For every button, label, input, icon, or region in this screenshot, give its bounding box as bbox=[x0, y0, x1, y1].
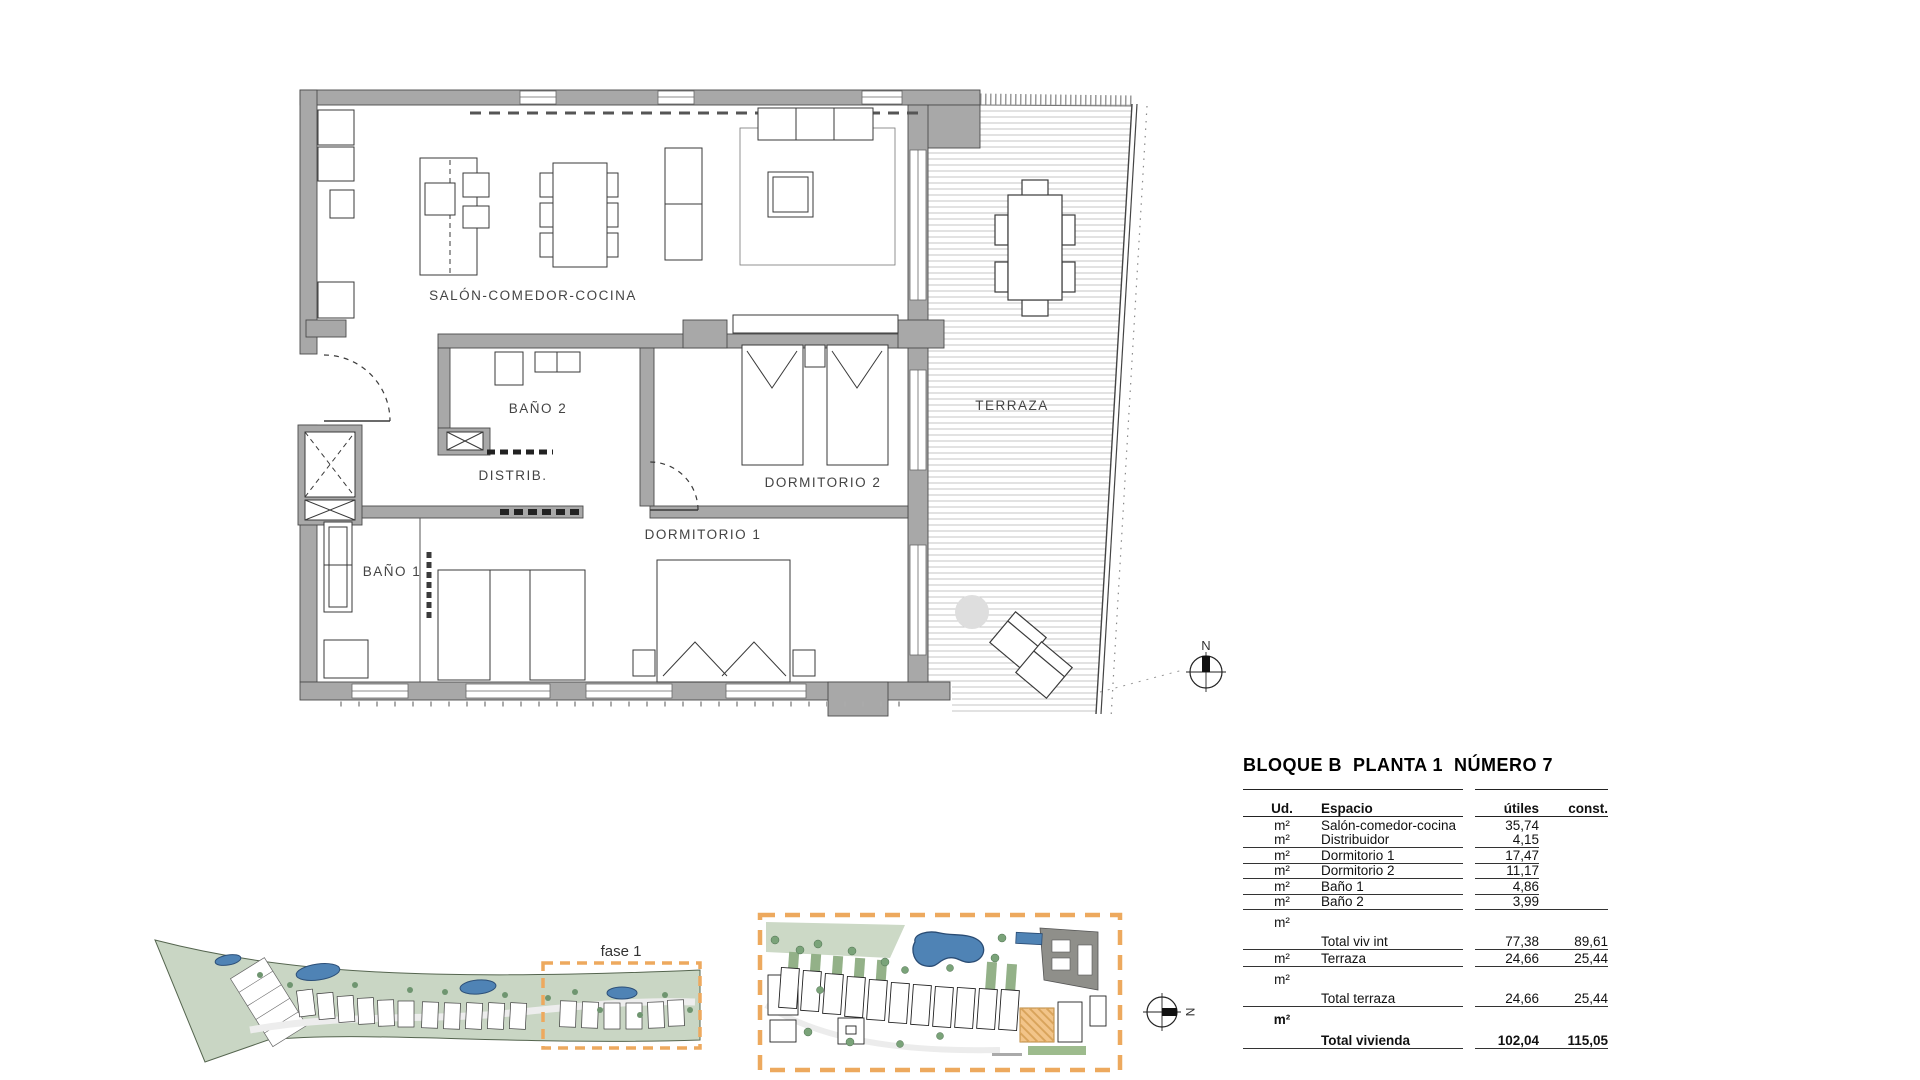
cell-utiles: 4,15 bbox=[1475, 832, 1539, 848]
architectural-sheet: SALÓN-COMEDOR-COCINA BAÑO 2 DISTRIB. DOR… bbox=[0, 0, 1920, 1080]
cell-const: 89,61 bbox=[1539, 934, 1608, 949]
phase1-label: fase 1 bbox=[601, 943, 642, 960]
elevator bbox=[305, 432, 355, 520]
table-row: m²Dormitorio 1 17,47 bbox=[1243, 848, 1611, 864]
bedroom2-beds bbox=[742, 345, 888, 465]
label-distrib: DISTRIB. bbox=[478, 468, 547, 483]
bedroom1-wardrobe bbox=[429, 552, 585, 680]
cell-utiles: 102,04 bbox=[1475, 1033, 1539, 1048]
site-overview-plan: fase 1 bbox=[155, 940, 700, 1062]
table-row: m²Baño 2 3,99 bbox=[1243, 895, 1611, 911]
table-row: m²Distribuidor 4,15 bbox=[1243, 833, 1611, 849]
col-ud: Ud. bbox=[1243, 801, 1321, 816]
label-bano2: BAÑO 2 bbox=[509, 401, 568, 416]
cell-espacio: Terraza bbox=[1321, 951, 1463, 966]
table-row-total: m²Total terraza 24,6625,44 bbox=[1243, 967, 1611, 1007]
summary-title: BLOQUE B PLANTA 1 NÚMERO 7 bbox=[1243, 755, 1611, 776]
cell-espacio: Total terraza bbox=[1321, 991, 1463, 1006]
site-detail-plan bbox=[760, 915, 1120, 1070]
detail-green-strip bbox=[1028, 1046, 1086, 1055]
table-header: Ud. Espacio útiles const. bbox=[1243, 790, 1611, 817]
table-row-grand-total: m²Total vivienda 102,04115,05 bbox=[1243, 1007, 1611, 1049]
cell-ud: m² bbox=[1243, 894, 1321, 909]
cell-ud: m² bbox=[1243, 951, 1321, 966]
detail-pool bbox=[913, 932, 984, 966]
cell-utiles: 17,47 bbox=[1475, 848, 1539, 864]
cell-utiles: 24,66 bbox=[1475, 991, 1539, 1006]
dining-table bbox=[540, 163, 618, 267]
kitchen-cabinets bbox=[318, 110, 354, 318]
detail-fine-print bbox=[992, 1053, 1022, 1056]
area-summary-table: BLOQUE B PLANTA 1 NÚMERO 7 Ud. Espacio ú… bbox=[1243, 755, 1611, 1049]
highlighted-block bbox=[1020, 1008, 1054, 1042]
cell-const: 25,44 bbox=[1539, 991, 1608, 1006]
cell-utiles: 24,66 bbox=[1475, 951, 1539, 966]
table-row-total: m²Total viv int 77,3889,61 bbox=[1243, 910, 1611, 950]
cell-espacio: Baño 2 bbox=[1321, 894, 1463, 909]
cell-utiles: 3,99 bbox=[1475, 894, 1539, 909]
cell-ud: m² bbox=[1243, 1006, 1321, 1027]
bedroom1-bed bbox=[633, 560, 815, 682]
bathroom1-fixtures bbox=[324, 522, 368, 678]
table-row: m²Terraza 24,6625,44 bbox=[1243, 950, 1611, 967]
col-utiles: útiles bbox=[1475, 801, 1539, 816]
cell-const: 25,44 bbox=[1539, 951, 1608, 966]
cell-ud: m² bbox=[1243, 863, 1321, 878]
site-compass-icon: N bbox=[1143, 993, 1197, 1031]
site-north-label: N bbox=[1183, 1008, 1197, 1017]
table-row: m²Salón-comedor-cocina 35,74 bbox=[1243, 817, 1611, 833]
table-row: m²Baño 1 4,86 bbox=[1243, 879, 1611, 895]
cell-ud: m² bbox=[1243, 818, 1321, 833]
cell-utiles: 11,17 bbox=[1475, 863, 1539, 879]
cell-ud: m² bbox=[1243, 848, 1321, 863]
cell-espacio: Baño 1 bbox=[1321, 879, 1463, 894]
label-dormitorio1: DORMITORIO 1 bbox=[645, 527, 762, 542]
label-salon: SALÓN-COMEDOR-COCINA bbox=[429, 288, 637, 303]
cell-ud: m² bbox=[1243, 966, 1321, 987]
cell-utiles: 77,38 bbox=[1475, 934, 1539, 949]
cell-ud: m² bbox=[1243, 832, 1321, 847]
table-row: m²Dormitorio 2 11,17 bbox=[1243, 864, 1611, 880]
cell-espacio: Distribuidor bbox=[1321, 832, 1463, 847]
cell-utiles: 35,74 bbox=[1475, 818, 1539, 833]
col-espacio: Espacio bbox=[1321, 801, 1463, 816]
label-bano1: BAÑO 1 bbox=[363, 564, 422, 579]
north-label: N bbox=[1201, 638, 1210, 653]
cell-const: 115,05 bbox=[1539, 1033, 1608, 1048]
sofa-group bbox=[665, 108, 898, 333]
cell-espacio: Dormitorio 1 bbox=[1321, 848, 1463, 863]
cell-espacio: Dormitorio 2 bbox=[1321, 863, 1463, 878]
floor-plan-drawing: SALÓN-COMEDOR-COCINA BAÑO 2 DISTRIB. DOR… bbox=[0, 0, 1920, 1080]
col-const: const. bbox=[1539, 801, 1608, 816]
cell-espacio: Total viv int bbox=[1321, 934, 1463, 949]
cell-ud: m² bbox=[1243, 909, 1321, 930]
cell-ud: m² bbox=[1243, 879, 1321, 894]
label-terraza: TERRAZA bbox=[975, 398, 1049, 413]
cell-espacio: Total vivienda bbox=[1321, 1033, 1463, 1048]
kitchen-island bbox=[420, 158, 489, 275]
north-compass-icon: N bbox=[1186, 638, 1226, 692]
cell-utiles: 4,86 bbox=[1475, 879, 1539, 895]
cell-espacio: Salón-comedor-cocina bbox=[1321, 818, 1463, 833]
label-dormitorio2: DORMITORIO 2 bbox=[765, 475, 882, 490]
